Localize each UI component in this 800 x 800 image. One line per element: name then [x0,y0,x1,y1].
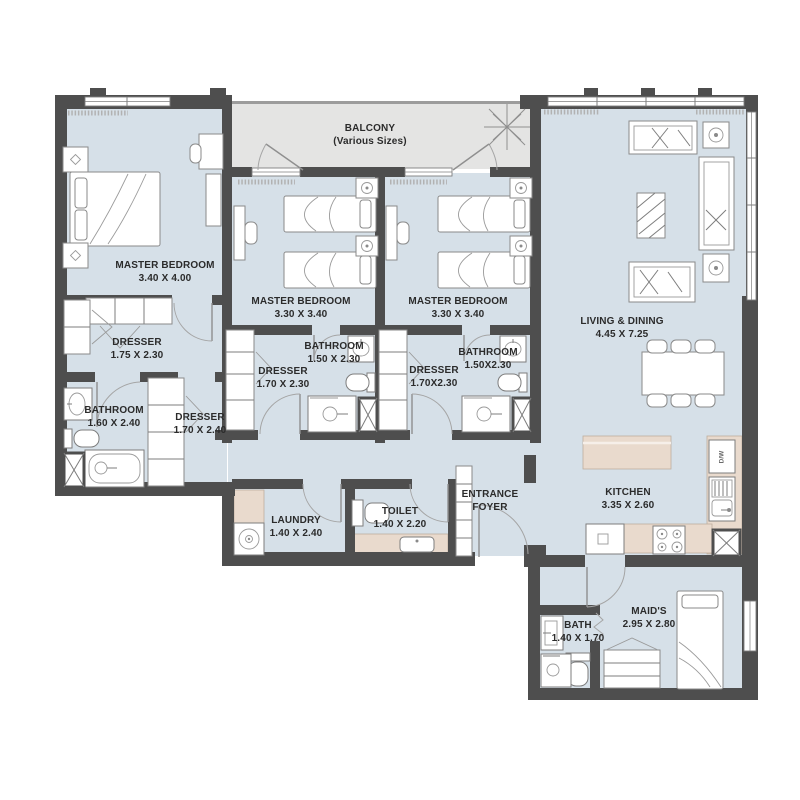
room-name: BALCONY [333,122,406,135]
room-name: KITCHEN [602,486,655,499]
room-dims: 4.45 X 7.25 [580,328,663,341]
room-label-laundry: LAUNDRY1.40 X 2.40 [270,514,323,540]
room-label-toilet: TOILET1.40 X 2.20 [374,505,427,531]
room-name: MASTER BEDROOM [408,295,507,308]
room-name: LAUNDRY [270,514,323,527]
room-name: DRESSER [111,336,164,349]
room-label-dresser-4: DRESSER1.70 X 2.40 [174,411,227,437]
room-label-bathroom-3: BATHROOM1.50X2.30 [458,346,517,372]
room-name: LIVING & DINING [580,315,663,328]
room-name: BATH [552,619,605,632]
room-label-dresser-2: DRESSER1.70 X 2.30 [257,365,310,391]
room-dims: 3.40 X 4.00 [115,272,214,285]
room-name: ENTRANCE [462,488,519,501]
room-name: BATHROOM [458,346,517,359]
room-dims: 1.70 X 2.30 [257,378,310,391]
room-dims: 3.30 X 3.40 [251,308,350,321]
room-label-bath: BATH1.40 X 1.70 [552,619,605,645]
room-dims: 1.40 X 2.40 [270,527,323,540]
room-dims: 3.30 X 3.40 [408,308,507,321]
room-dims: 1.75 X 2.30 [111,349,164,362]
room-label-master-bedroom-2: MASTER BEDROOM3.30 X 3.40 [251,295,350,321]
room-dims: 3.35 X 2.60 [602,499,655,512]
room-name: DRESSER [409,364,458,377]
room-name: BATHROOM [304,340,363,353]
room-dims: 1.60 X 2.40 [84,417,143,430]
room-dims: 1.70 X 2.40 [174,424,227,437]
room-label-maids: MAID'S2.95 X 2.80 [623,605,676,631]
room-name: MAID'S [623,605,676,618]
room-label-kitchen: KITCHEN3.35 X 2.60 [602,486,655,512]
room-labels: BALCONY(Various Sizes) MASTER BEDROOM3.4… [0,0,800,800]
room-dims: (Various Sizes) [333,135,406,148]
room-name: DRESSER [174,411,227,424]
room-label-balcony: BALCONY(Various Sizes) [333,122,406,148]
room-name: MASTER BEDROOM [115,259,214,272]
room-dims: 1.40 X 1.70 [552,632,605,645]
room-name: TOILET [374,505,427,518]
floor-plan: BALCONY(Various Sizes) MASTER BEDROOM3.4… [0,0,800,800]
room-name: BATHROOM [84,404,143,417]
room-label-bathroom-1: BATHROOM1.60 X 2.40 [84,404,143,430]
room-label-master-bedroom-3: MASTER BEDROOM3.30 X 3.40 [408,295,507,321]
room-dims: 2.95 X 2.80 [623,618,676,631]
room-name: MASTER BEDROOM [251,295,350,308]
room-name: DRESSER [257,365,310,378]
room-label-entrance-foyer: ENTRANCEFOYER [462,488,519,514]
dishwasher-label: D/W [719,451,726,464]
room-dims: 1.70X2.30 [409,377,458,390]
room-label-dresser-1: DRESSER1.75 X 2.30 [111,336,164,362]
room-label-living-dining: LIVING & DINING4.45 X 7.25 [580,315,663,341]
room-dims: 1.50 X 2.30 [304,353,363,366]
room-label-bathroom-2: BATHROOM1.50 X 2.30 [304,340,363,366]
room-dims: 1.50X2.30 [458,359,517,372]
room-label-dresser-3: DRESSER1.70X2.30 [409,364,458,390]
room-dims: FOYER [462,501,519,514]
room-dims: 1.40 X 2.20 [374,518,427,531]
room-label-master-bedroom-1: MASTER BEDROOM3.40 X 4.00 [115,259,214,285]
